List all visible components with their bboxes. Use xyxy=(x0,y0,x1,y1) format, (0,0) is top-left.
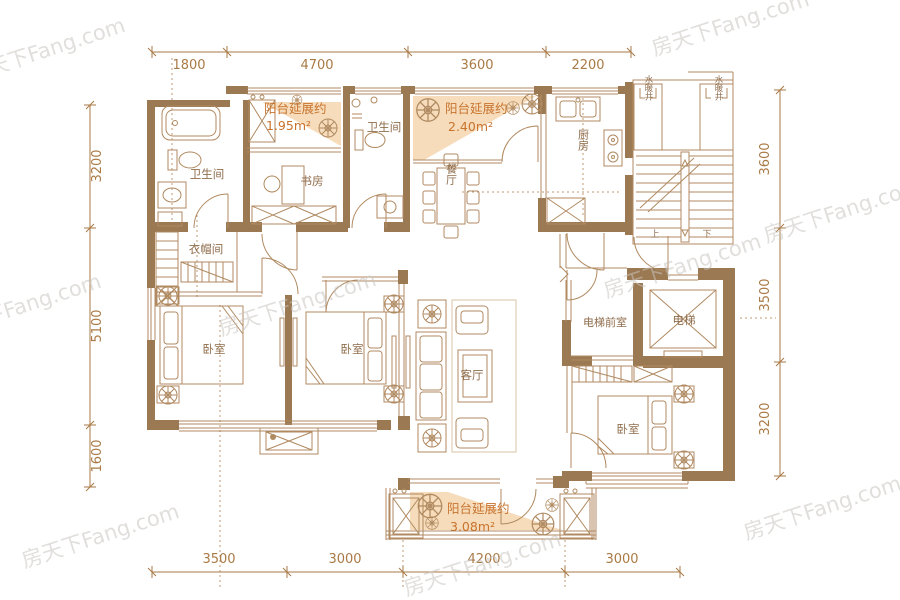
dim-bottom-1: 3000 xyxy=(328,552,361,567)
sink xyxy=(377,196,403,218)
dim-top-2: 3600 xyxy=(460,58,493,73)
dim-left-0: 3200 xyxy=(90,149,105,182)
dim-left-1: 5100 xyxy=(90,309,105,342)
floorplan-page: 房天下Fang.com 房天下Fang.com 房天下Fang.com 房天下F… xyxy=(0,0,900,600)
plant-icon xyxy=(417,99,440,122)
dim-left-2: 1600 xyxy=(90,439,105,472)
floorplan-drawing: 上 下 水暖井 水暖井 xyxy=(0,0,900,600)
label-study: 书房 xyxy=(301,174,324,188)
label-dining: 餐厅 xyxy=(445,162,458,185)
balcony1-area: 1.95m² xyxy=(266,118,311,133)
dim-right-0: 3600 xyxy=(758,142,773,175)
fan-table-icon xyxy=(423,305,441,323)
label-elevator: 电梯 xyxy=(673,313,696,327)
plant-icon xyxy=(426,517,439,530)
balcony2-area: 2.40m² xyxy=(448,119,493,134)
plant-icon xyxy=(532,513,554,535)
plant-icon xyxy=(507,102,520,115)
dim-top-1: 4700 xyxy=(300,58,333,73)
bathtub xyxy=(162,106,220,140)
label-kitchen: 厨房 xyxy=(577,129,590,152)
lamp-icon xyxy=(159,287,177,305)
dim-top-0: 1800 xyxy=(172,58,205,73)
label-elevator-lobby: 电梯前室 xyxy=(583,315,627,329)
balcony2-label: 阳台延展约 xyxy=(445,101,508,116)
balcony-highlights xyxy=(262,96,562,530)
lamp-icon xyxy=(159,386,177,404)
label-bathroom-middle: 卫生间 xyxy=(367,120,402,134)
staircase: 上 下 水暖井 水暖井 xyxy=(634,75,733,242)
label-bedroom-right: 卧室 xyxy=(617,422,640,436)
dim-bottom-0: 3500 xyxy=(202,552,235,567)
stove xyxy=(604,130,622,166)
lamp-icon xyxy=(675,451,693,469)
plant-icon xyxy=(546,499,559,512)
shower-fixtures xyxy=(352,97,377,118)
balcony3-area: 3.08m² xyxy=(450,519,495,534)
label-living: 客厅 xyxy=(461,368,484,382)
plant-icon xyxy=(522,94,542,114)
kitchen-sink xyxy=(556,97,600,121)
balcony1-label: 阳台延展约 xyxy=(264,101,327,116)
stairs-down-label: 下 xyxy=(702,230,711,240)
balcony3-label: 阳台延展约 xyxy=(447,501,510,516)
lamp-icon xyxy=(385,295,403,313)
shaft-right-label: 水暖井 xyxy=(713,75,723,102)
label-bathroom-left: 卫生间 xyxy=(190,167,225,181)
plant-icon xyxy=(418,494,441,517)
stairs-up-label: 上 xyxy=(650,229,659,240)
wardrobe xyxy=(572,366,672,382)
planter-dot xyxy=(270,434,276,440)
shaft-left-label: 水暖井 xyxy=(643,75,653,102)
lamp-icon xyxy=(675,385,693,403)
label-bedroom-middle: 卧室 xyxy=(341,342,364,356)
dim-right-1: 3500 xyxy=(758,278,773,311)
label-closet: 衣帽间 xyxy=(189,242,224,256)
plant-icon xyxy=(319,119,337,137)
dim-bottom-2: 4200 xyxy=(467,552,500,567)
dim-top-3: 2200 xyxy=(571,58,604,73)
dim-bottom-3: 3000 xyxy=(605,552,638,567)
label-bedroom-left: 卧室 xyxy=(203,342,226,356)
dim-right-2: 3200 xyxy=(758,402,773,435)
fan-table-icon xyxy=(423,429,441,447)
fridge xyxy=(547,198,585,224)
